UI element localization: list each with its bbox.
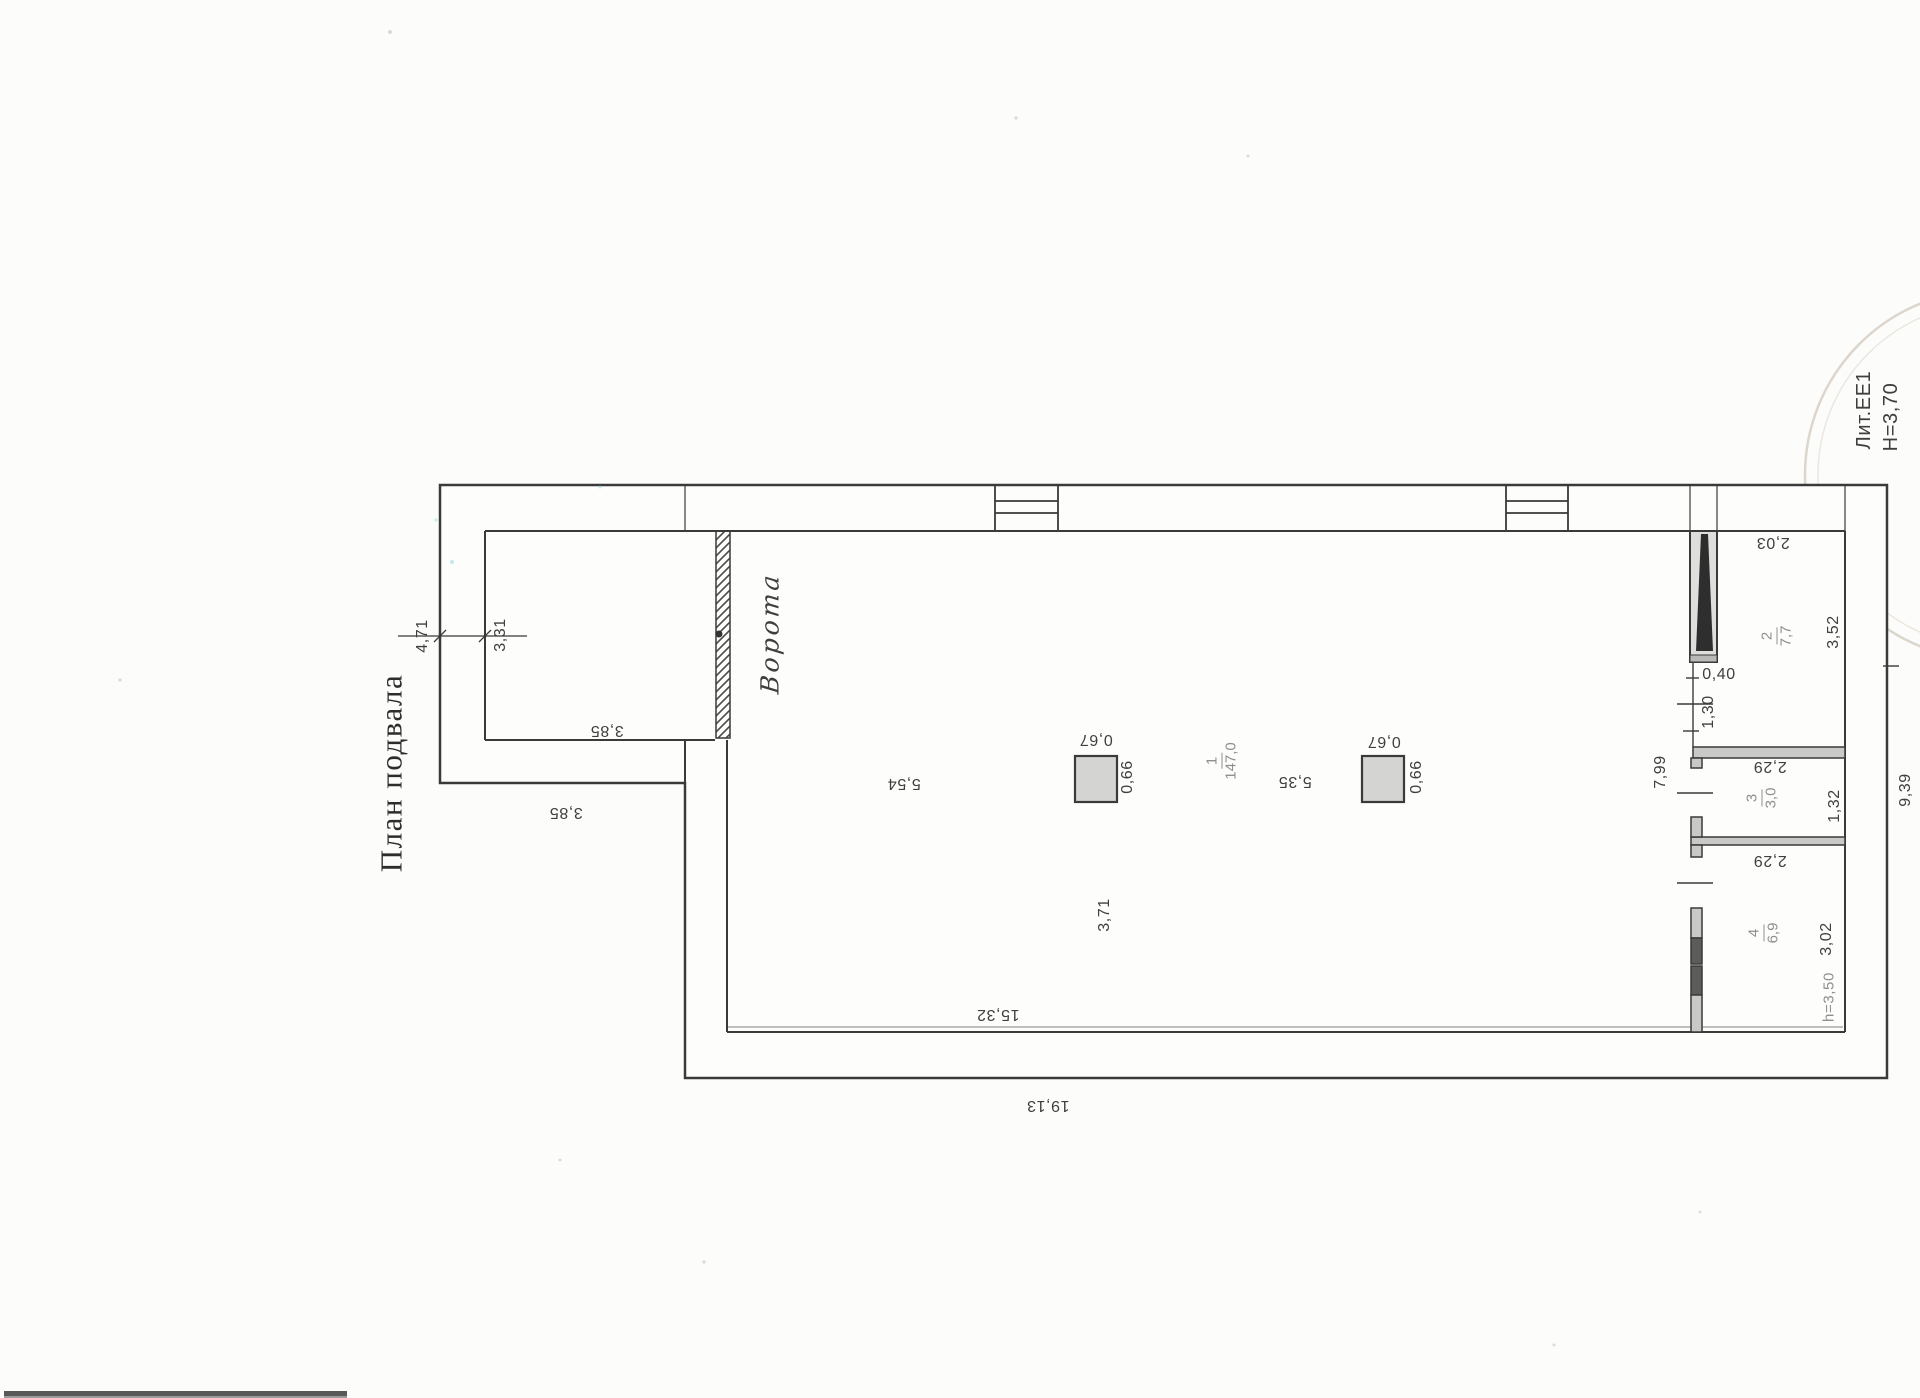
stamp-liter: Лит.ЕЕ1 <box>1854 371 1874 450</box>
room4-label: 4 6,9 <box>1746 923 1783 944</box>
room4-number: 4 <box>1746 925 1765 941</box>
dim-room2-depth: 3,52 <box>1826 615 1842 649</box>
entrance-stair <box>1690 531 1717 662</box>
dim-room2-door: 1,30 <box>1701 695 1717 729</box>
dim-column-to-column: 5,35 <box>1278 773 1312 789</box>
room1-label: 1 147,0 <box>1204 742 1241 780</box>
room4-ceiling-note: h=3,50 <box>1822 972 1837 1022</box>
dim-room3-depth: 1,32 <box>1827 789 1843 823</box>
gate-hinge-mark <box>716 631 723 638</box>
dim-gate-to-column: 5,54 <box>887 775 921 791</box>
dim-corridor-length: 7,99 <box>1653 755 1669 789</box>
room3-area: 3,0 <box>1763 788 1781 809</box>
room1-area: 147,0 <box>1223 742 1241 780</box>
room4-area: 6,9 <box>1765 923 1783 944</box>
room1-number: 1 <box>1204 753 1223 769</box>
dim-hall-length: 15,32 <box>976 1006 1019 1022</box>
room2-number: 2 <box>1759 628 1778 644</box>
column-right <box>1362 756 1404 802</box>
dim-column-offset: 3,71 <box>1097 898 1113 932</box>
building-outline <box>440 485 1887 1078</box>
column-left <box>1075 756 1117 802</box>
dim-ext-depth-outer: 3,85 <box>549 804 583 820</box>
dim-building-side: 9,39 <box>1898 773 1914 807</box>
stamp-height-note: Н=3,70 <box>1881 383 1901 452</box>
dim-room3-width: 2,29 <box>1753 758 1787 774</box>
dim-ext-outer-width: 4,71 <box>415 619 431 653</box>
floor-plan-drawing <box>0 0 1920 1398</box>
room2-label: 2 7,7 <box>1759 626 1796 647</box>
dim-column-left-top: 0,67 <box>1079 731 1113 747</box>
dim-column-right-side: 0,66 <box>1409 760 1425 794</box>
dim-room4-depth: 3,02 <box>1819 922 1835 956</box>
scanned-floor-plan-page: План подвала 4,71 3,31 3,85 3,85 Ворота … <box>0 0 1920 1398</box>
scanner-edge-bar <box>4 1391 347 1398</box>
dim-stair-width: 0,40 <box>1702 667 1736 683</box>
dim-ext-depth-inner: 3,85 <box>590 722 624 738</box>
dim-room2-width: 2,03 <box>1756 534 1790 550</box>
dim-ext-inner-width: 3,31 <box>493 618 509 652</box>
dim-column-right-top: 0,67 <box>1367 733 1401 749</box>
plan-title: План подвала <box>376 674 407 872</box>
room3-number: 3 <box>1744 790 1763 806</box>
room3-label: 3 3,0 <box>1744 788 1781 809</box>
dim-building-length: 19,13 <box>1026 1097 1069 1113</box>
dim-room4-width: 2,29 <box>1753 852 1787 868</box>
gate-label: Ворота <box>758 571 783 695</box>
dim-column-left-side: 0,66 <box>1120 760 1136 794</box>
room2-area: 7,7 <box>1778 626 1796 647</box>
